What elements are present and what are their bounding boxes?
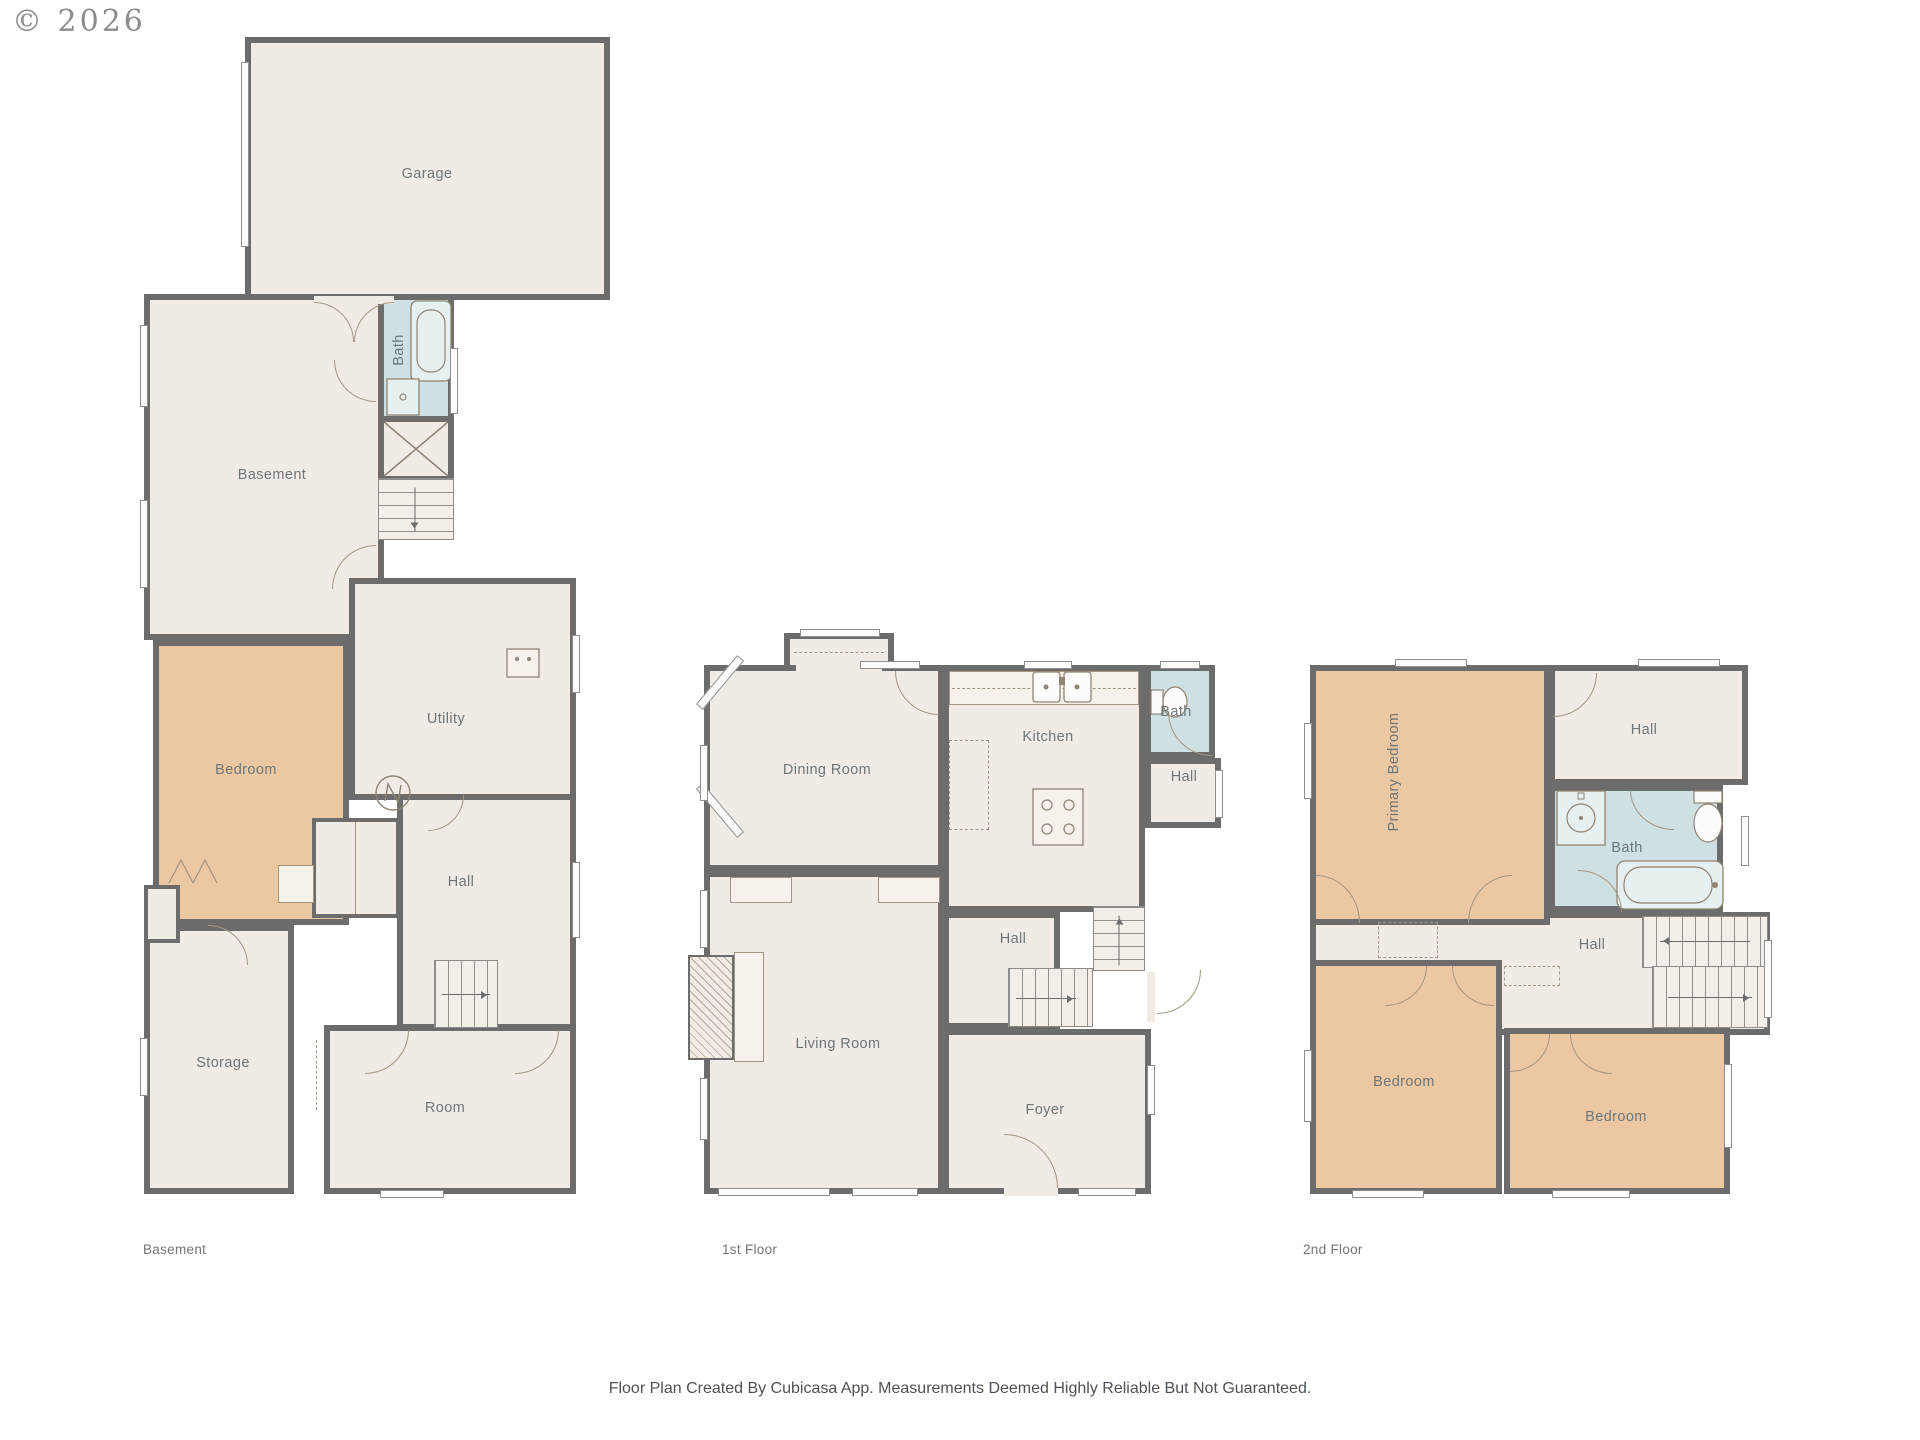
window (852, 1188, 918, 1196)
vanity-sink-icon (1556, 790, 1606, 846)
room-label-dining: Dining Room (783, 762, 871, 778)
window (1741, 816, 1749, 866)
stairs-left-arrow (1660, 941, 1750, 942)
room-label-utility: Utility (427, 711, 465, 727)
stairs-down-arrow (415, 488, 416, 532)
window (1724, 1064, 1732, 1148)
window (1352, 1190, 1424, 1198)
room-label-primary-bedroom: Primary Bedroom (1386, 713, 1402, 832)
closet-small (144, 885, 180, 943)
window (241, 62, 249, 247)
floor-caption-second: 2nd Floor (1303, 1242, 1363, 1257)
copyright-watermark: © 2026 (12, 4, 146, 39)
window (572, 862, 580, 938)
window (1147, 1065, 1155, 1115)
window (1304, 723, 1312, 799)
room-label-kitchen: Kitchen (1022, 729, 1073, 745)
floor-plan-canvas: © 2026 Garage (0, 0, 1920, 1440)
room-utility (349, 578, 576, 800)
window (860, 661, 920, 669)
kitchen-sink-icon (1032, 671, 1092, 703)
bifold-door-icon (168, 858, 220, 884)
cased-opening (316, 1040, 317, 1110)
window (1215, 770, 1223, 818)
window (1764, 940, 1772, 1018)
room-label-second-bath: Bath (1611, 840, 1642, 856)
footer-note: Floor Plan Created By Cubicasa App. Meas… (0, 1380, 1920, 1398)
bathtub-icon (1616, 860, 1724, 910)
window (1160, 661, 1200, 669)
closet-divider (355, 822, 356, 914)
room-label-room: Room (425, 1100, 465, 1116)
window (1024, 661, 1072, 669)
toilet-icon (1686, 790, 1730, 846)
window (140, 500, 148, 588)
room-label-basement-hall: Hall (448, 874, 475, 890)
window (700, 745, 708, 801)
room-label-first-hall: Hall (1000, 931, 1027, 947)
closet-dash (1504, 966, 1560, 986)
window (1078, 1188, 1136, 1196)
room-label-first-hall-upper: Hall (1171, 769, 1198, 785)
window (800, 629, 880, 637)
stairs-up-arrow (442, 994, 490, 995)
room-label-garage: Garage (402, 166, 453, 182)
desk (278, 865, 314, 903)
room-label-basement-bath: Bath (391, 334, 407, 365)
closet-x-icon (382, 420, 450, 478)
window (380, 1190, 444, 1198)
window (140, 325, 148, 407)
room-label-foyer: Foyer (1025, 1102, 1064, 1118)
window (1395, 659, 1467, 667)
window (718, 1188, 830, 1196)
room-label-bedroom-left: Bedroom (1373, 1074, 1435, 1090)
room-label-first-bath: Bath (1160, 704, 1191, 720)
room-label-basement-bedroom: Bedroom (215, 762, 277, 778)
window (1638, 659, 1720, 667)
window (1552, 1190, 1630, 1198)
stairs-up-arrow (1119, 916, 1120, 966)
utility-sink-icon (506, 648, 540, 678)
closet-double (312, 818, 400, 918)
room-label-living: Living Room (796, 1036, 881, 1052)
stairs-run-arrow (1016, 998, 1076, 999)
stove-island-icon (1032, 788, 1084, 846)
room-primary-bedroom (1310, 665, 1550, 925)
window (450, 348, 458, 414)
floor-caption-first: 1st Floor (722, 1242, 777, 1257)
window (700, 890, 708, 948)
window (140, 1038, 148, 1096)
room-label-basement: Basement (238, 467, 307, 483)
room-label-storage: Storage (196, 1055, 250, 1071)
builtin-shelf (730, 877, 792, 903)
fireplace-hearth (734, 952, 764, 1062)
kitchen-cabinet-dash (949, 740, 989, 830)
water-heater-icon (374, 774, 412, 812)
room-label-second-hall-upper: Hall (1631, 722, 1658, 738)
closet-dash (1378, 922, 1438, 958)
bath-sink-icon (386, 378, 420, 416)
door-arc (1157, 970, 1201, 1014)
window (700, 1078, 708, 1140)
fireplace-icon (688, 955, 734, 1060)
window (572, 635, 580, 693)
builtin-shelf (878, 877, 940, 903)
bathtub-icon (410, 300, 452, 382)
room-label-bedroom-right: Bedroom (1585, 1109, 1647, 1125)
room-label-second-hall: Hall (1579, 937, 1606, 953)
floor-caption-basement: Basement (143, 1242, 206, 1257)
door-gap (1147, 972, 1155, 1022)
stairs-right-arrow (1668, 997, 1752, 998)
window-seat-dash (794, 652, 884, 653)
window (1304, 1050, 1312, 1122)
